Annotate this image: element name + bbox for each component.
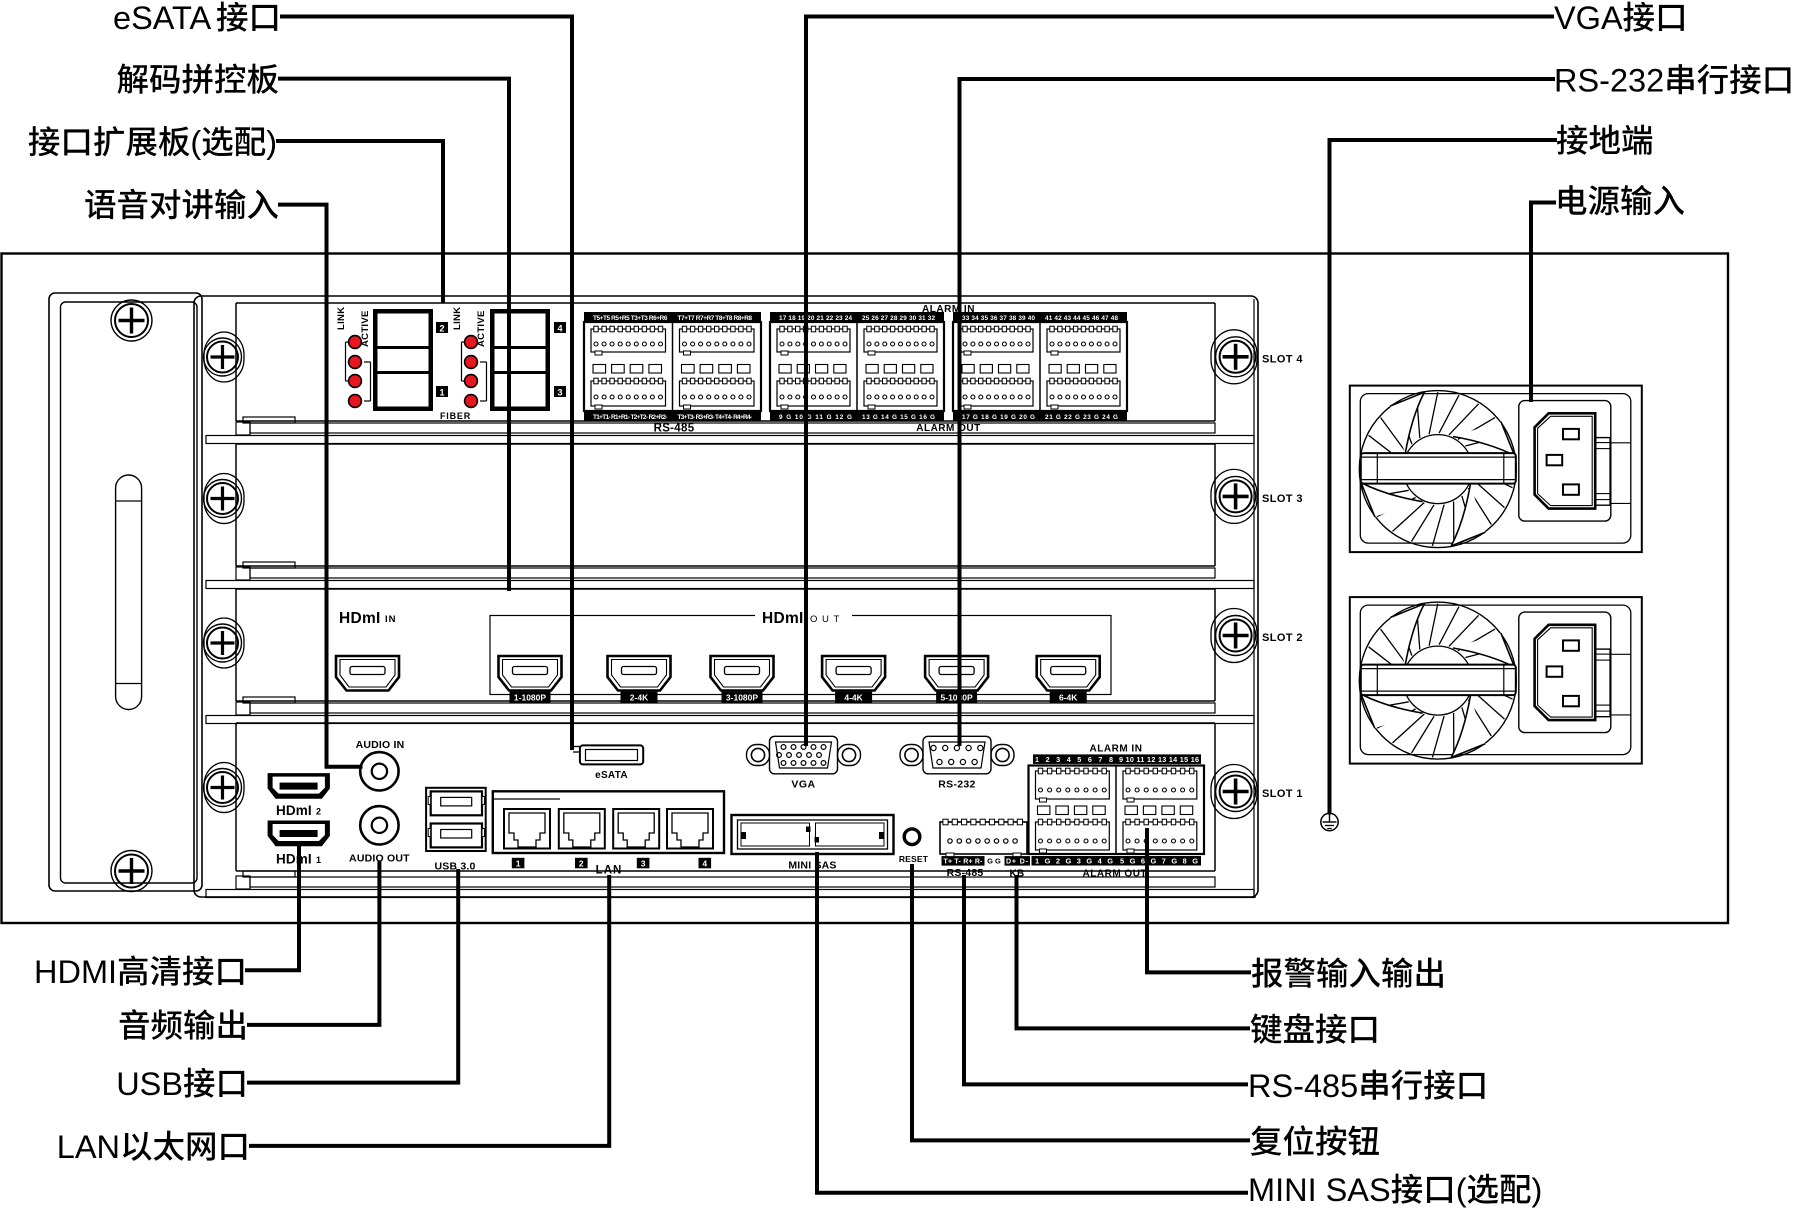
svg-text:H D m I: H D m I <box>339 610 380 627</box>
svg-text:AUDIO IN: AUDIO IN <box>356 739 405 751</box>
svg-text:FIBER: FIBER <box>440 411 471 421</box>
svg-text:H D m I: H D m I <box>762 610 803 627</box>
svg-text:3: 3 <box>557 387 562 397</box>
svg-text:): ) <box>266 125 277 161</box>
svg-text:USB: USB <box>116 1066 183 1102</box>
svg-text:RESET: RESET <box>899 854 929 864</box>
svg-text:2: 2 <box>439 323 444 333</box>
svg-text:ALARM IN: ALARM IN <box>1090 744 1143 755</box>
svg-text:T1+T1- R1+R1- T2+T2- R2+R2-: T1+T1- R1+R1- T2+T2- R2+R2- <box>593 414 668 421</box>
svg-text:MINI SAS: MINI SAS <box>1248 1172 1391 1208</box>
svg-text:6-4K: 6-4K <box>1059 693 1078 703</box>
svg-text:(: ( <box>190 125 201 161</box>
svg-text:RS-485: RS-485 <box>654 423 695 435</box>
svg-text:VGA: VGA <box>791 779 815 791</box>
svg-text:9 G 10 G 11 G 12 G: 9 G 10 G 11 G 12 G <box>779 414 852 421</box>
svg-text:H D m I: H D m I <box>276 803 311 818</box>
svg-text:5-1080P: 5-1080P <box>941 693 973 703</box>
svg-text:33 34 35 36 37 38 39 40: 33 34 35 36 37 38 39 40 <box>962 315 1035 322</box>
svg-text:3-1080P: 3-1080P <box>726 693 758 703</box>
svg-text:9 10 11 12 13 14 15 16: 9 10 11 12 13 14 15 16 <box>1119 755 1199 764</box>
svg-text:H D m I: H D m I <box>276 852 311 867</box>
svg-text:17 G 18 G 19 G 20 G: 17 G 18 G 19 G 20 G <box>962 414 1035 421</box>
svg-text:SLOT 2: SLOT 2 <box>1262 632 1303 644</box>
svg-text:D+ D-: D+ D- <box>1006 859 1029 866</box>
svg-text:2-4K: 2-4K <box>630 693 649 703</box>
svg-text:IN: IN <box>385 614 397 625</box>
svg-text:SLOT 1: SLOT 1 <box>1262 788 1303 800</box>
svg-text:SLOT 4: SLOT 4 <box>1262 353 1303 365</box>
svg-text:LINK: LINK <box>336 307 347 330</box>
svg-text:T7+T7 R7+R7 T8+T8 R8+R8: T7+T7 R7+R7 T8+T8 R8+R8 <box>678 315 753 322</box>
svg-text:1: 1 <box>316 855 321 865</box>
svg-text:1: 1 <box>439 387 444 397</box>
svg-text:21 G 22 G 23 G 24 G: 21 G 22 G 23 G 24 G <box>1045 414 1118 421</box>
svg-text:LAN: LAN <box>596 865 623 877</box>
svg-text:T3+T3- R3+R3- T4+T4- R4+R4-: T3+T3- R3+R3- T4+T4- R4+R4- <box>678 414 753 421</box>
svg-text:(: ( <box>1456 1172 1467 1208</box>
svg-text:1-1080P: 1-1080P <box>514 693 546 703</box>
svg-text:2: 2 <box>316 807 321 817</box>
svg-text:LINK: LINK <box>452 307 463 330</box>
svg-text:T5+T5 R5+R5 T3+T3 R6+R6: T5+T5 R5+R5 T3+T3 R6+R6 <box>593 315 668 322</box>
svg-text:41 42 43 44 45 46 47 48: 41 42 43 44 45 46 47 48 <box>1045 315 1118 322</box>
svg-text:RS-232: RS-232 <box>1554 63 1664 99</box>
svg-text:4: 4 <box>557 323 562 333</box>
svg-text:25 26 27 28 29 30 31 32: 25 26 27 28 29 30 31 32 <box>862 315 935 322</box>
svg-text:SLOT 3: SLOT 3 <box>1262 493 1303 505</box>
svg-text:4: 4 <box>702 858 707 868</box>
svg-text:13 G 14 G 15 G 16 G: 13 G 14 G 15 G 16 G <box>862 414 935 421</box>
svg-text:4-4K: 4-4K <box>844 693 863 703</box>
svg-text:eSATA: eSATA <box>113 0 211 36</box>
svg-text:HDMI: HDMI <box>34 954 117 990</box>
svg-text:eSATA: eSATA <box>595 770 628 781</box>
svg-text:MINI SAS: MINI SAS <box>788 860 836 872</box>
svg-text:RS-485: RS-485 <box>1248 1068 1358 1104</box>
svg-text:1 G 2 G 3 G 4 G: 1 G 2 G 3 G 4 G <box>1035 857 1113 866</box>
svg-text:T+ T- R+ R-: T+ T- R+ R- <box>944 859 984 866</box>
svg-text:1 2 3 4 5 6 7 8: 1 2 3 4 5 6 7 8 <box>1035 755 1113 764</box>
svg-text:1: 1 <box>516 858 521 868</box>
svg-text:ALARM OUT: ALARM OUT <box>916 423 981 434</box>
svg-text:O U T: O U T <box>810 614 840 625</box>
svg-text:ALARM OUT: ALARM OUT <box>1083 869 1148 880</box>
svg-text:2: 2 <box>579 858 584 868</box>
svg-text:): ) <box>1532 1172 1543 1208</box>
svg-text:G G: G G <box>987 857 1001 866</box>
svg-text:17 18 19 20 21 22 23 24: 17 18 19 20 21 22 23 24 <box>779 315 852 322</box>
svg-text:3: 3 <box>641 858 646 868</box>
svg-text:LAN: LAN <box>57 1129 120 1165</box>
svg-text:VGA: VGA <box>1554 0 1623 36</box>
svg-text:5 G 6 G 7 G 8 G: 5 G 6 G 7 G 8 G <box>1120 857 1198 866</box>
svg-text:RS-232: RS-232 <box>938 779 975 791</box>
svg-text:USB 3.0: USB 3.0 <box>434 861 475 873</box>
